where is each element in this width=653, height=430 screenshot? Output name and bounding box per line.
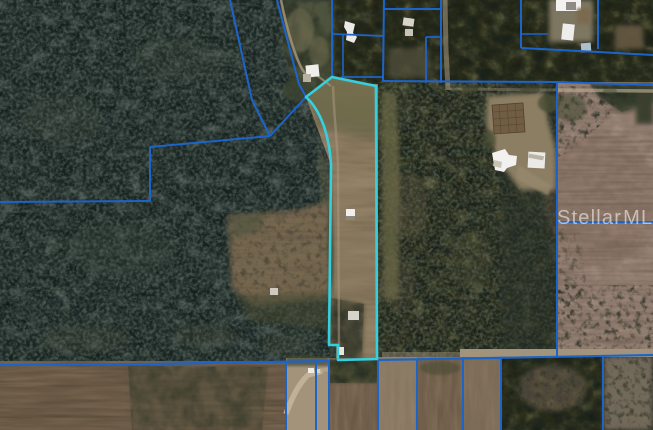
svg-text:StellarMLS: StellarMLS xyxy=(557,207,653,229)
